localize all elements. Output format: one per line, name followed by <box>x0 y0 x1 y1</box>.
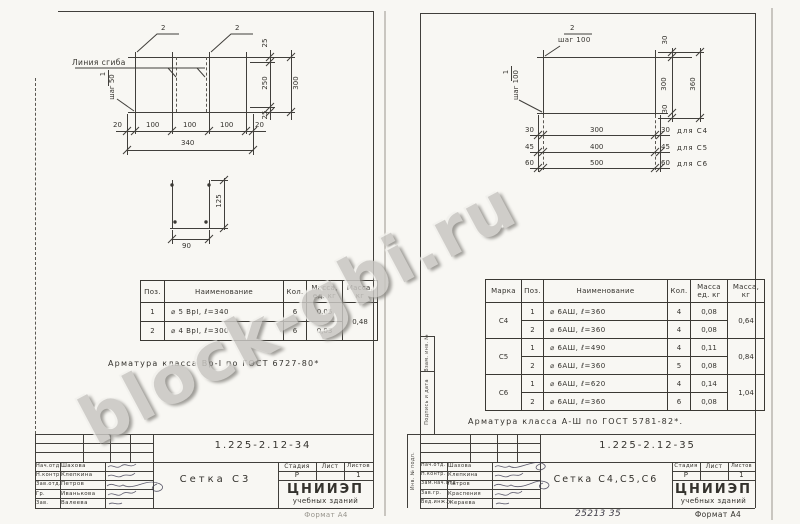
label: 60 <box>525 159 534 167</box>
label: Массаед. кг <box>691 280 728 303</box>
label: 2 <box>141 322 165 341</box>
label: 100 <box>183 121 196 129</box>
label: Масса, <box>733 283 759 291</box>
label: Нач.отд. <box>36 463 62 469</box>
label: 2 <box>522 357 544 375</box>
label: 6 <box>668 393 691 411</box>
stage-value: Р <box>672 471 700 479</box>
pos-label: 1 <box>99 54 107 94</box>
detail-height-dim: 125 <box>215 181 223 221</box>
label: 0,08 <box>691 393 728 411</box>
pitch-label: шаг 100 <box>558 36 591 44</box>
label: Масса <box>697 283 721 291</box>
label: 30 <box>525 126 534 134</box>
label: Краспения <box>448 491 481 497</box>
label: для С5 <box>677 144 708 152</box>
pitch-label: шаг 50 <box>108 67 116 107</box>
label: 0,08 <box>691 321 728 339</box>
label: ⌀ 6АШ, ℓ=490 <box>544 339 668 357</box>
label: 100 <box>220 121 233 129</box>
label: Шахова <box>448 463 472 469</box>
label: Иванькова <box>61 491 95 497</box>
label: Вед.инж. <box>421 500 447 505</box>
label: 1,04 <box>728 375 765 411</box>
label: Н.контр. <box>421 472 446 477</box>
label: 60 <box>661 159 670 167</box>
sheets-value: 1 <box>728 471 755 479</box>
label: 0,08 <box>691 303 728 321</box>
label: для С4 <box>677 127 708 135</box>
format-label: Формат А4 <box>286 511 366 519</box>
scanned-drawing-sheets: 2 2 Линия сгиба 1 шаг 50 20 100 100 100 … <box>0 0 800 524</box>
label: Валеева <box>61 500 88 506</box>
label: Поз. <box>522 280 544 303</box>
label: Лист <box>316 463 344 470</box>
label: 0,08 <box>691 357 728 375</box>
label: 20 <box>113 121 122 129</box>
label: Листов <box>344 463 373 469</box>
sheets-value: 1 <box>344 471 373 479</box>
label: 300 <box>590 126 603 134</box>
label: 25 <box>261 23 269 63</box>
pitch-label: шаг 100 <box>512 65 520 105</box>
label: 1 <box>141 303 165 322</box>
stage-value: Р <box>278 471 316 479</box>
right-note: Арматура класса А-Ш по ГОСТ 5781-82*. <box>468 417 683 426</box>
right-spec-table: Марка Поз. Наименование Кол. Массаед. кг… <box>485 279 765 411</box>
label: Наименование <box>544 280 668 303</box>
org-subname: учебных зданий <box>278 497 373 505</box>
leader-label: 2 <box>570 24 574 32</box>
label: 30 <box>661 89 669 129</box>
org-name: ЦНИИЭП <box>278 482 373 497</box>
label: Клепкина <box>448 472 478 478</box>
label: кг <box>742 291 751 299</box>
label: ⌀ 6АШ, ℓ=360 <box>544 357 668 375</box>
label: 0,84 <box>728 339 765 375</box>
label: 30 <box>661 126 670 134</box>
mark-cell: С4 <box>486 303 522 339</box>
label: ⌀ 6АШ, ℓ=360 <box>544 393 668 411</box>
format-label: Формат А4 <box>678 510 758 519</box>
org-name: ЦНИИЭП <box>672 482 755 497</box>
label: 1 <box>522 303 544 321</box>
label: 5 <box>668 357 691 375</box>
org-subname: учебных зданий <box>672 497 755 505</box>
label: 4 <box>668 339 691 357</box>
label: 0,11 <box>691 339 728 357</box>
label: Листов <box>728 463 755 469</box>
label: Лист <box>700 463 728 470</box>
label: Шахова <box>61 463 86 469</box>
label: ⌀ 6АШ, ℓ=360 <box>544 321 668 339</box>
label: Петров <box>448 481 470 487</box>
label: Марка <box>486 280 522 303</box>
label: Жераева <box>448 500 475 506</box>
label: 500 <box>590 159 603 167</box>
sheet-title: Сетка С4,С5,С6 <box>540 474 672 485</box>
label: 300 <box>292 63 300 103</box>
leader-label: 2 <box>161 24 165 32</box>
label: 0,64 <box>728 303 765 339</box>
label: Нач.отд. <box>421 463 446 468</box>
label: ⌀ 6АШ, ℓ=360 <box>544 303 668 321</box>
label: 0,14 <box>691 375 728 393</box>
handwritten-number: 25213 35 <box>575 509 621 519</box>
label: 1 <box>522 339 544 357</box>
label: Гр. <box>36 491 45 497</box>
label: Стадия <box>672 463 700 469</box>
label: 4 <box>668 375 691 393</box>
doc-number: 1.225-2.12-34 <box>153 440 373 451</box>
label: Кол. <box>668 280 691 303</box>
label: Поз. <box>141 281 165 303</box>
mark-cell: С6 <box>486 375 522 411</box>
bar-section-dots <box>170 183 210 223</box>
total-dim: 340 <box>181 139 194 147</box>
stamp-inv-podl: Инв. № подл. <box>410 436 416 506</box>
label: 2 <box>522 393 544 411</box>
stamp-podpis-data: Подпись и дата <box>424 367 430 437</box>
doc-number: 1.225-2.12-35 <box>540 440 755 451</box>
label: 2 <box>522 321 544 339</box>
label: 400 <box>590 143 603 151</box>
label: ед. кг <box>697 291 720 299</box>
label: 360 <box>689 64 697 104</box>
label: Н.контр. <box>36 472 62 478</box>
sheet-title: Сетка С3 <box>153 474 278 485</box>
label: ⌀ 6АШ, ℓ=620 <box>544 375 668 393</box>
label: Стадия <box>278 463 316 470</box>
detail-width-dim: 90 <box>182 242 191 250</box>
label: 45 <box>661 143 670 151</box>
label: Зав. <box>36 500 48 506</box>
pos-label: 1 <box>502 52 510 92</box>
label: Клепкина <box>61 472 92 478</box>
label: Зав.гр. <box>421 491 441 496</box>
label: для С6 <box>677 160 708 168</box>
label: 4 <box>668 321 691 339</box>
label: Масса,кг <box>728 280 765 303</box>
label: 30 <box>661 20 669 60</box>
mark-cell: С5 <box>486 339 522 375</box>
label: Петров <box>61 481 84 487</box>
label: Зав.отд. <box>36 481 61 487</box>
label: 45 <box>525 143 534 151</box>
label: 1 <box>522 375 544 393</box>
label: 4 <box>668 303 691 321</box>
leader-label: 2 <box>235 24 239 32</box>
label: 100 <box>146 121 159 129</box>
label: 25 <box>261 95 269 135</box>
